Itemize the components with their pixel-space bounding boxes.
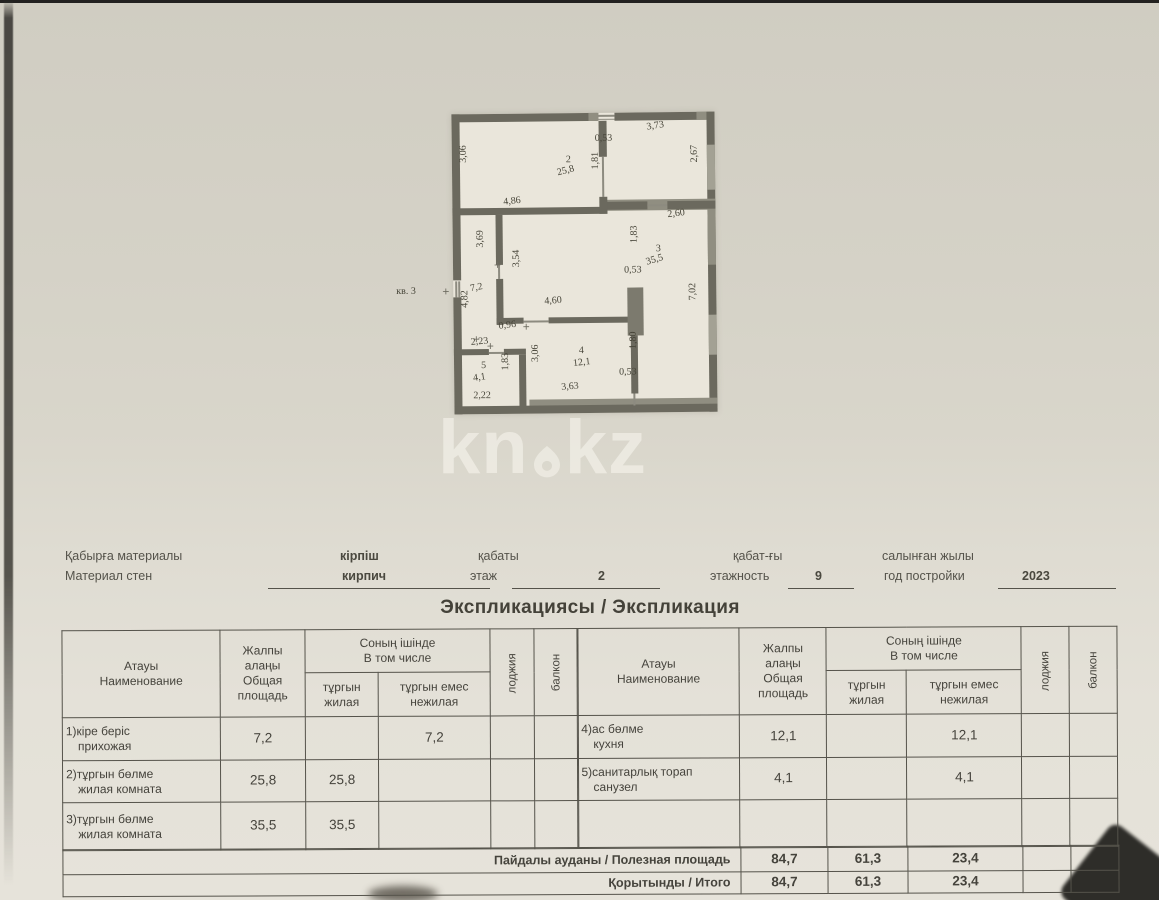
watermark-text-right: kz — [565, 412, 647, 484]
explication-table: Атауы Наименование Жалпы алаңы Общая пло… — [61, 626, 1119, 898]
plan-dimension-label: 4 — [579, 346, 584, 356]
room-total: 35,5 — [221, 802, 306, 850]
header-non-living: тұргын емес нежилая — [907, 670, 1022, 715]
entry-door-line — [455, 281, 457, 297]
room-loggia — [1022, 713, 1070, 756]
room-living — [827, 757, 907, 799]
plan-dimension-label: 5 — [481, 361, 486, 371]
survey-cross-mark: + — [473, 335, 480, 343]
wall-bath-top-a — [454, 349, 489, 355]
table-row: 2)тұргын бөлмежилая комната 25,8 25,8 — [62, 759, 578, 803]
plan-dimension-label: 0,96 — [498, 320, 517, 332]
plan-dimension-label: 3,63 — [561, 382, 579, 393]
explication-table-right: Атауы Наименование Жалпы алаңы Общая пло… — [577, 626, 1119, 849]
room-loggia — [491, 801, 535, 849]
house-drop-icon — [534, 446, 560, 478]
room-non-living — [378, 759, 490, 801]
survey-cross-mark: + — [494, 261, 501, 269]
table-row: 1)кіре берісприхожая 7,2 7,2 — [62, 716, 578, 761]
table-row-empty — [578, 798, 1118, 848]
room-living: 25,8 — [305, 759, 378, 801]
floors-total-value: 9 — [815, 569, 822, 583]
room-total: 4,1 — [740, 757, 827, 799]
wall-material-label-kz: Қабырға материалы — [65, 549, 182, 563]
kn-kz-watermark: kn kz — [438, 412, 647, 484]
survey-cross-mark: + — [442, 287, 449, 295]
wall-bath-right — [519, 355, 527, 407]
header-living: тұргын жилая — [827, 670, 907, 714]
room-loggia — [490, 716, 534, 759]
wall-right-window — [707, 145, 715, 190]
room-non-living: 12,1 — [907, 714, 1022, 758]
room-loggia — [491, 759, 535, 801]
explication-totals: Пайдалы ауданы / Полезная площадь 84,7 6… — [62, 845, 1119, 898]
floor-plan: 3,06225,80,533,731,812,674,862,603,693,5… — [446, 103, 729, 426]
totals-living: 61,3 — [828, 872, 908, 894]
room-balcony — [535, 759, 579, 801]
scanned-floorplan-document: 3,06225,80,533,731,812,674,862,603,693,5… — [0, 0, 1159, 900]
totals-non-living: 23,4 — [908, 871, 1023, 894]
room-balcony — [534, 716, 578, 759]
header-loggia: лоджия — [1021, 626, 1069, 713]
plan-dimension-label: 4,82 — [460, 290, 470, 308]
wall-material-label-ru: Материал стен — [65, 569, 152, 583]
plan-dimension-label: 2,60 — [667, 208, 686, 220]
header-balcony: балкон — [534, 629, 578, 716]
underline — [268, 588, 490, 589]
room-living — [305, 716, 378, 759]
window-line — [597, 115, 614, 117]
year-value: 2023 — [1022, 569, 1050, 583]
room-name: 2)тұргын бөлмежилая комната — [62, 760, 220, 803]
underline — [998, 588, 1116, 589]
explication-table-left: Атауы Наименование Жалпы алаңы Общая пло… — [61, 628, 579, 851]
plan-dimension-label: 1,80 — [629, 331, 639, 349]
plan-dimension-label: 0,53 — [624, 265, 642, 275]
wall-room3-bottom-b — [549, 317, 629, 324]
totals-total: 84,7 — [741, 847, 828, 872]
wall-pillar — [627, 287, 644, 335]
plan-dimension-label: 3,06 — [531, 344, 541, 362]
totals-label: Пайдалы ауданы / Полезная площадь — [63, 847, 741, 875]
header-total-area: Жалпы алаңы Общая площадь — [739, 627, 826, 714]
wall-right-block — [707, 203, 716, 265]
header-non-living: тұргын емес нежилая — [378, 672, 490, 716]
header-living: тұргын жилая — [305, 672, 378, 716]
plan-dimension-label: 3,54 — [512, 250, 522, 268]
totals-row-itogo: Қорытынды / Итого 84,7 61,3 23,4 — [63, 871, 1119, 898]
table-row: 4)ас бөлмекухня 12,1 12,1 — [578, 713, 1118, 758]
room-total: 7,2 — [220, 717, 305, 760]
room-non-living: 7,2 — [378, 716, 490, 759]
opening-line — [602, 157, 604, 197]
survey-cross-mark: + — [487, 342, 494, 350]
wall-material-value-kz: кірпіш — [340, 549, 379, 563]
header-name: Атауы Наименование — [62, 630, 220, 718]
plan-dimension-labels: 3,06225,80,533,731,812,674,862,603,693,5… — [446, 103, 726, 106]
wall-right-window — [709, 315, 717, 355]
opening-line — [647, 204, 667, 206]
plan-dimension-label: 2,22 — [473, 391, 491, 401]
survey-cross-mark: + — [523, 323, 530, 331]
header-total-area: Жалпы алаңы Общая площадь — [220, 630, 305, 717]
wall-seg — [602, 201, 647, 209]
totals-label: Қорытынды / Итого — [63, 872, 741, 897]
floor-label-ru: этаж — [470, 569, 497, 583]
room-non-living: 4,1 — [907, 757, 1022, 800]
underline — [788, 588, 854, 589]
watermark-text-left: kn — [438, 412, 529, 484]
room-total: 12,1 — [740, 714, 827, 757]
room-name: 5)санитарлық торапсанузел — [578, 758, 740, 801]
room-loggia — [1022, 756, 1070, 798]
plan-dimension-label: 0,53 — [619, 367, 637, 377]
header-loggia: лоджия — [490, 629, 534, 716]
room-living — [827, 714, 907, 757]
explication-title: Экспликациясы / Экспликация — [330, 597, 850, 619]
wall-left-lower — [453, 297, 462, 414]
plan-dimension-label: 4,60 — [544, 296, 562, 307]
floors-total-label-ru: этажность — [710, 569, 769, 583]
room-living: 35,5 — [306, 801, 379, 849]
header-balcony: балкон — [1069, 626, 1117, 713]
header-including: Соның ішінде В том числе — [826, 627, 1021, 671]
table-row: 5)санитарлық торапсанузел 4,1 4,1 — [578, 756, 1118, 800]
plan-dimension-label: 1,83 — [501, 353, 511, 371]
floor-value: 2 — [598, 569, 605, 583]
header-including: Соның ішінде В том числе — [305, 629, 490, 673]
room-total: 25,8 — [220, 760, 305, 802]
year-label-ru: год постройки — [884, 569, 965, 583]
room-name: 3)тұргын бөлмежилая комната — [63, 802, 221, 851]
plan-dimension-label: 4,1 — [473, 372, 487, 384]
table-row: 3)тұргын бөлмежилая комната 35,5 35,5 — [63, 801, 579, 851]
photo-edge-top — [0, 0, 1159, 3]
plan-dimension-label: 12,1 — [573, 357, 592, 369]
header-name: Атауы Наименование — [577, 628, 739, 716]
plan-dimension-label: кв. 3 — [396, 287, 416, 297]
wall-material-value-ru: кирпич — [342, 569, 386, 583]
totals-living: 61,3 — [828, 847, 908, 872]
plan-dimension-label: 0,53 — [595, 134, 613, 144]
room-balcony — [535, 801, 579, 849]
plan-dimension-label: 1,81 — [591, 152, 601, 170]
room-balcony — [1070, 756, 1118, 798]
wall-room2-right-lower — [599, 197, 607, 214]
floor-label-kz: қабаты — [478, 549, 519, 563]
room-balcony — [1070, 713, 1118, 756]
plan-dimension-label: 7,02 — [688, 283, 698, 301]
totals-total: 84,7 — [741, 872, 828, 894]
plan-dimension-label: 3,69 — [476, 230, 486, 248]
door-line — [633, 394, 635, 406]
year-label-kz: салынған жылы — [882, 549, 974, 563]
wall-top-left — [451, 113, 597, 123]
floors-total-label-kz: қабат-ғы — [733, 549, 782, 563]
room-non-living — [379, 801, 491, 849]
room-name: 1)кіре берісприхожая — [62, 717, 220, 761]
underline — [512, 588, 660, 589]
floor-plan-paper — [451, 112, 717, 415]
totals-non-living: 23,4 — [908, 846, 1023, 872]
plan-dimension-label: 3,06 — [459, 145, 469, 163]
photo-fold-line-left — [4, 0, 13, 885]
plan-dimension-label: 4,86 — [503, 196, 522, 208]
window-line — [597, 118, 614, 120]
plan-dimension-label: 2,67 — [690, 145, 700, 163]
room-name: 4)ас бөлмекухня — [578, 715, 740, 759]
plan-dimension-label: 1,83 — [630, 225, 640, 243]
